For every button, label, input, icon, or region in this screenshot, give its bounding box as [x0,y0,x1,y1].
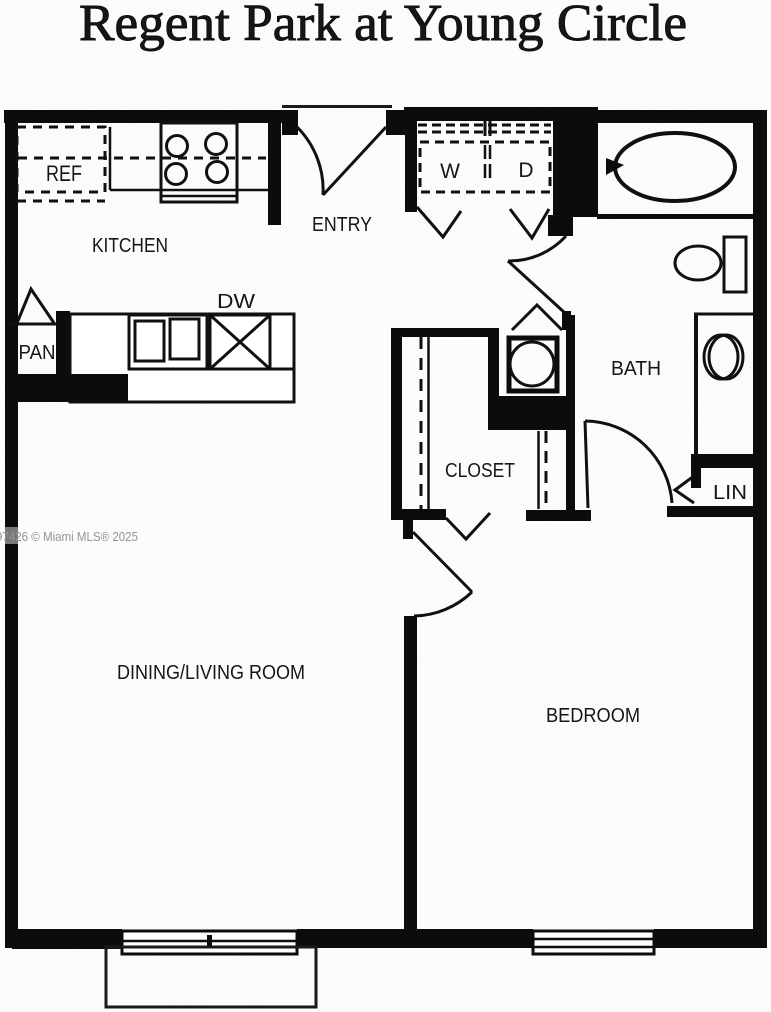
svg-text:BATH: BATH [611,358,661,380]
svg-text:ENTRY: ENTRY [312,214,372,236]
svg-text:PAN: PAN [19,342,56,364]
svg-text:Regent Park at Young Circle: Regent Park at Young Circle [79,0,687,52]
svg-text:KITCHEN: KITCHEN [92,235,168,257]
svg-text:97426 © Miami MLS® 2025: 97426 © Miami MLS® 2025 [0,530,138,544]
svg-text:REF: REF [46,161,82,186]
svg-text:LIN: LIN [713,482,747,504]
svg-text:DINING/LIVING ROOM: DINING/LIVING ROOM [117,662,305,684]
svg-text:D: D [518,159,533,182]
svg-text:DW: DW [217,291,255,313]
svg-text:CLOSET: CLOSET [445,460,515,482]
svg-text:W: W [440,160,460,183]
svg-text:BEDROOM: BEDROOM [546,705,640,727]
